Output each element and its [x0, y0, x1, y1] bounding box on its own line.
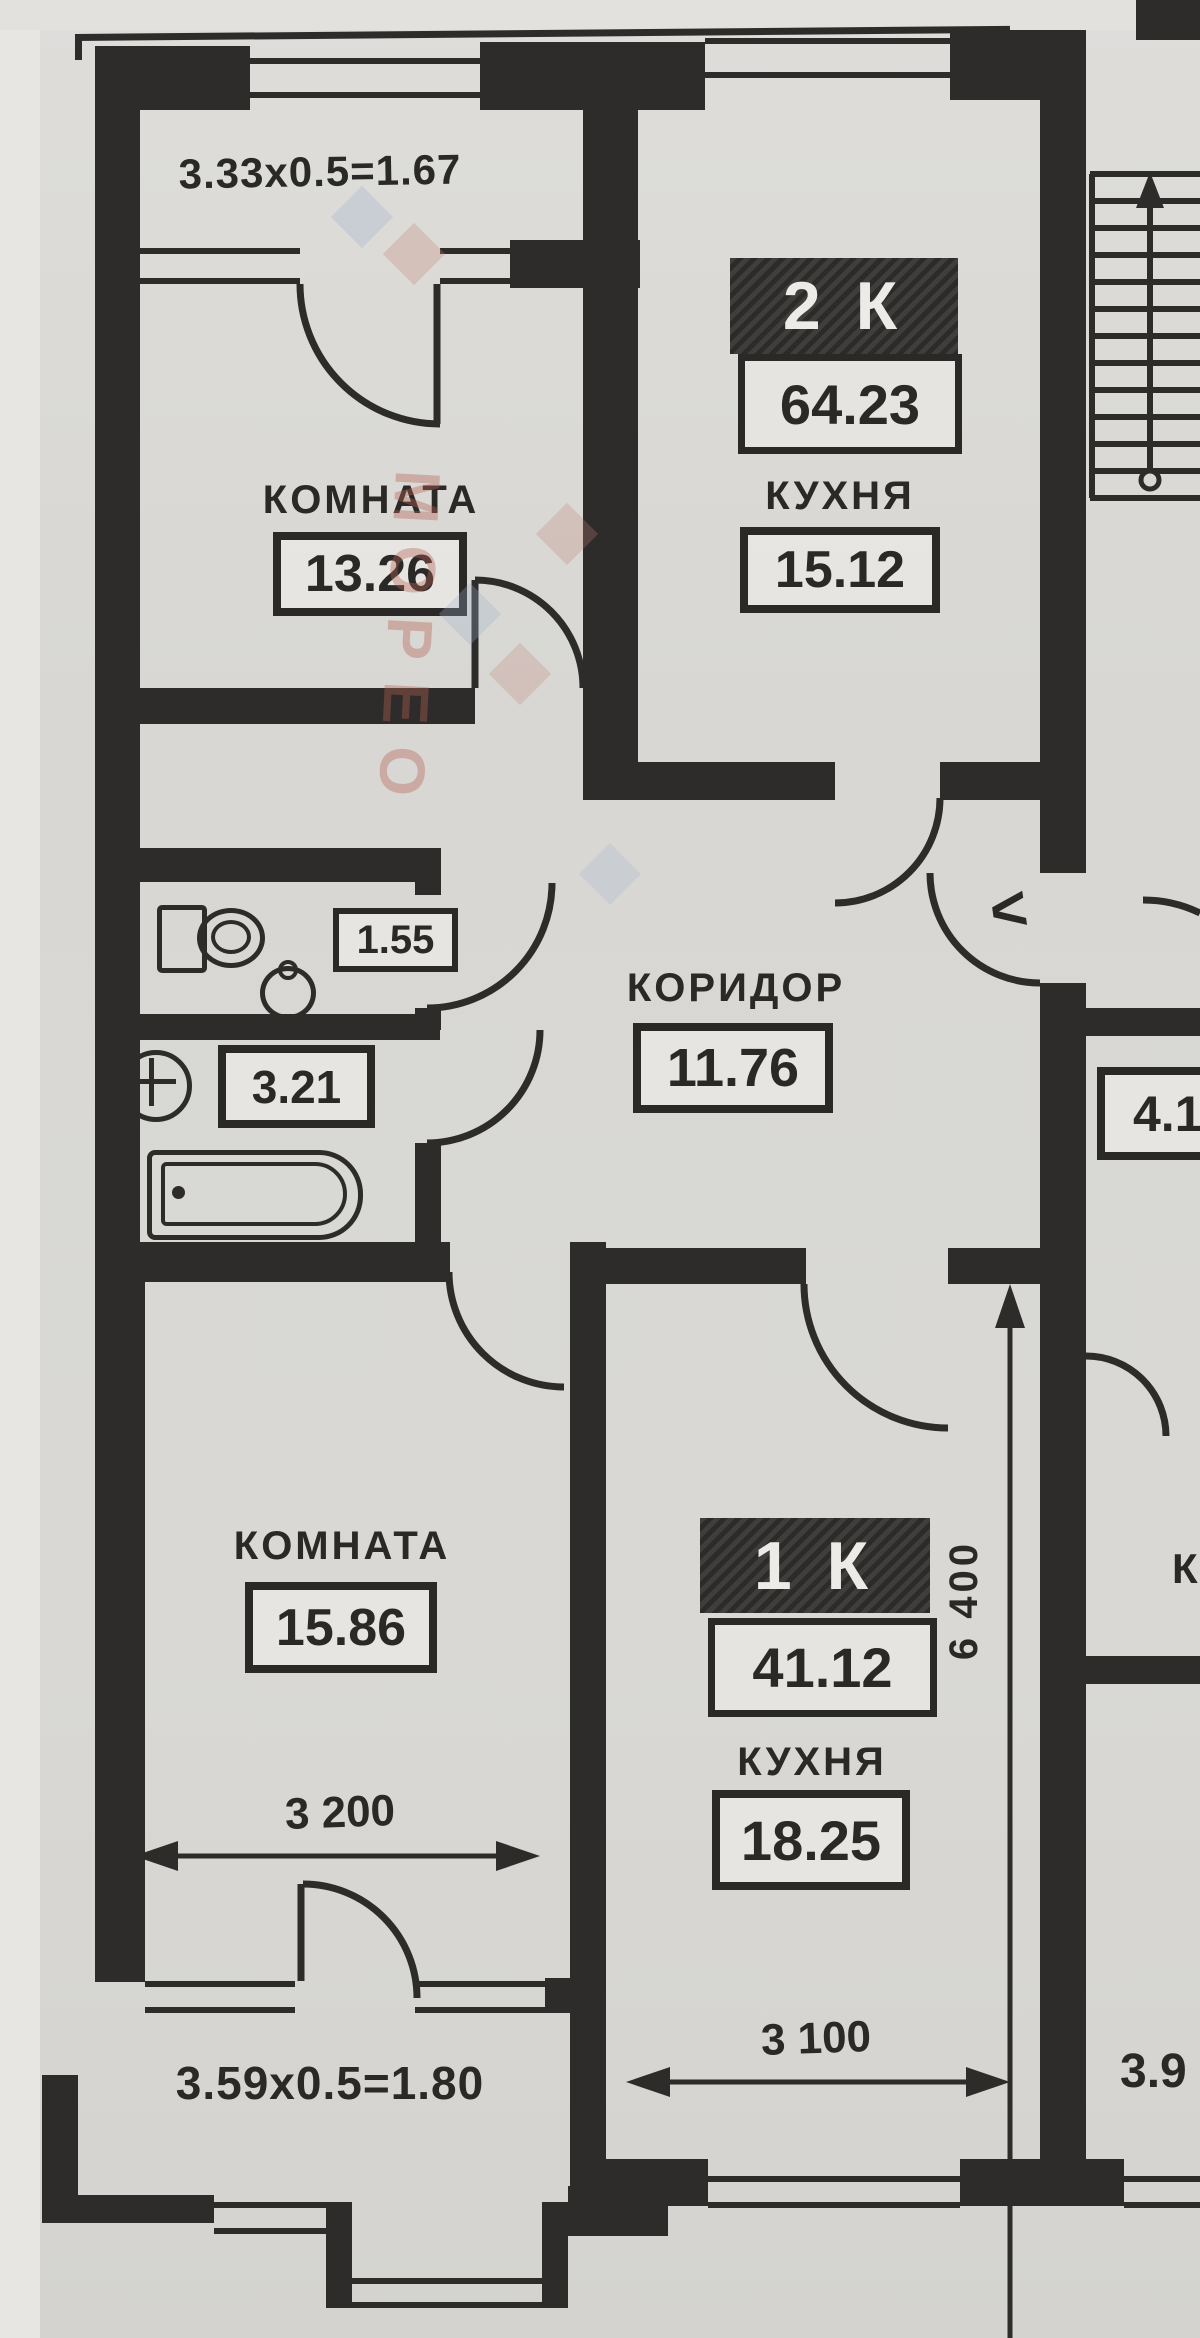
- door-arc-kitchen-top: [835, 798, 940, 903]
- sink-cross-v: [149, 1058, 154, 1106]
- dim-3200-label: 3 200: [239, 1785, 441, 1842]
- door-arc-balcony-top: [300, 284, 440, 424]
- room-bottom-label: КОМНАТА: [192, 1524, 492, 1569]
- door-arc-room-bottom: [449, 1272, 564, 1387]
- bath-area-box: 3.21: [218, 1045, 375, 1128]
- neighbor-bottom-area: 3.9: [1120, 2044, 1187, 2099]
- toilet-bowl-inner-icon: [211, 920, 251, 954]
- unit-2k-area-box: 64.23: [738, 354, 962, 454]
- unit-1k-badge: 1 К: [700, 1518, 930, 1613]
- sink-icon: [120, 1050, 192, 1122]
- dim-6400-label: 6 400: [942, 1540, 987, 1660]
- door-arc-neighbor-room: [1086, 1356, 1166, 1436]
- kitchen-top-area-box: 15.12: [740, 527, 940, 613]
- entrance-chevron-mark: <: [970, 867, 1050, 950]
- floorplan-canvas: 3.33x0.5=1.67 2 К 64.23 КОМНАТА 13.26 КУ…: [0, 0, 1200, 2338]
- unit-1k-area-box: 41.12: [708, 1618, 937, 1717]
- door-arc-balcony-bottom: [303, 1884, 417, 1998]
- kitchen-bottom-area-box: 18.25: [712, 1790, 910, 1890]
- room-bottom-area-box: 15.86: [245, 1582, 437, 1673]
- corridor-label: КОРИДОР: [586, 966, 886, 1011]
- neighbor-room-letter: К: [1172, 1545, 1200, 1593]
- corridor-area-box: 11.76: [633, 1023, 833, 1113]
- balcony-top-dimension: 3.33x0.5=1.67: [150, 145, 491, 199]
- unit-2k-badge: 2 К: [730, 258, 958, 354]
- bathtub-inner-icon: [161, 1162, 347, 1226]
- bathtub-drain-icon: [172, 1186, 185, 1199]
- room-top-label: КОМНАТА: [221, 478, 521, 523]
- neighbor-mid-area-box: 4.1: [1097, 1067, 1200, 1160]
- door-arc-bath: [427, 1030, 540, 1143]
- door-arc-entrance-1k: [804, 1284, 948, 1428]
- room-top-area-box: 13.26: [273, 532, 467, 616]
- dim-3100-label: 3 100: [715, 2011, 917, 2068]
- wc-area-box: 1.55: [333, 908, 458, 972]
- washer-knob-icon: [278, 960, 298, 980]
- stairs-up-arrow: [1136, 172, 1164, 208]
- kitchen-top-label: КУХНЯ: [740, 474, 940, 519]
- kitchen-bottom-label: КУХНЯ: [712, 1740, 912, 1785]
- balcony-bottom-dimension: 3.59x0.5=1.80: [140, 2056, 520, 2110]
- door-arc-neighbor-landing: [1143, 900, 1200, 913]
